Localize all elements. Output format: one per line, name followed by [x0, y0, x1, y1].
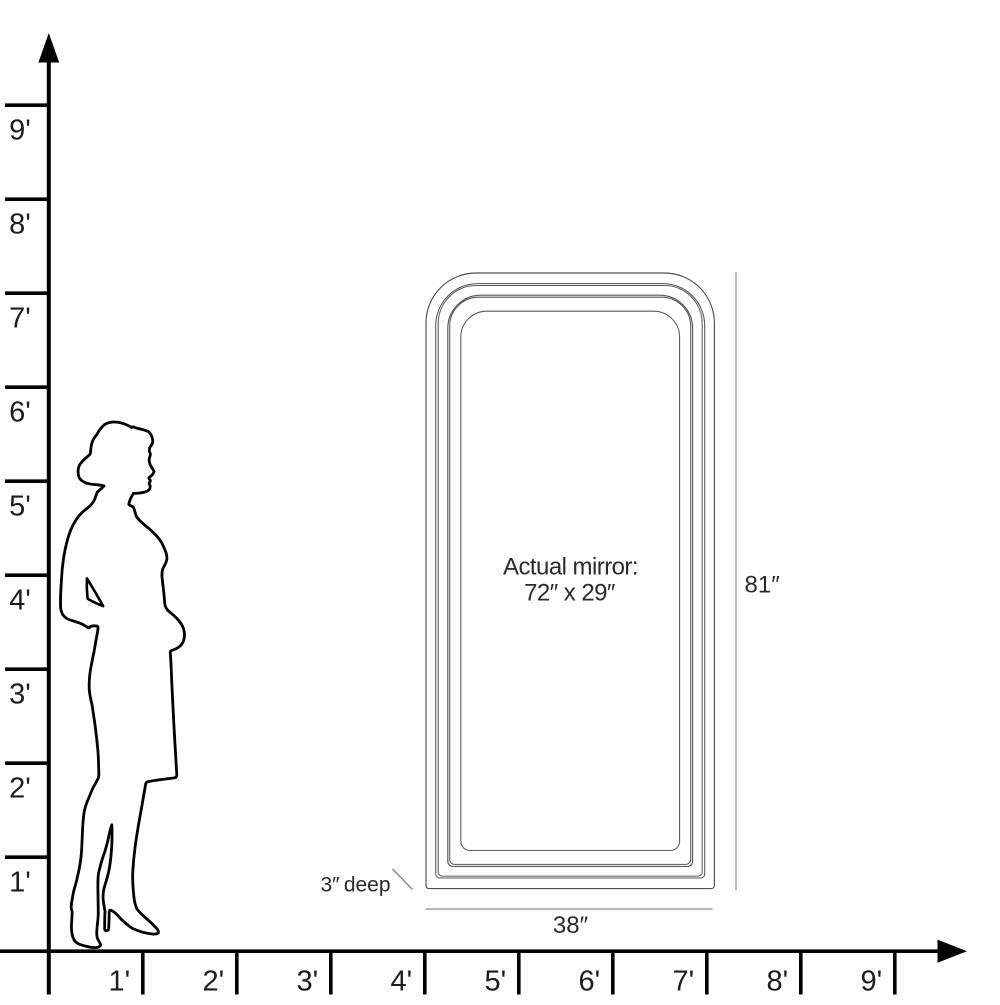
svg-text:8': 8' — [766, 966, 788, 998]
svg-text:4': 4' — [9, 585, 31, 617]
svg-text:4': 4' — [390, 966, 412, 998]
svg-text:6': 6' — [578, 966, 600, 998]
svg-text:Actual mirror:: Actual mirror: — [503, 554, 638, 581]
svg-text:2': 2' — [9, 773, 31, 805]
svg-text:81″: 81″ — [745, 572, 781, 599]
svg-text:9': 9' — [860, 966, 882, 998]
svg-text:1': 1' — [108, 966, 130, 998]
svg-text:5': 5' — [484, 966, 506, 998]
svg-text:1': 1' — [9, 867, 31, 899]
svg-text:3': 3' — [296, 966, 318, 998]
svg-text:8': 8' — [9, 209, 31, 241]
svg-text:5': 5' — [9, 491, 31, 523]
svg-text:7': 7' — [672, 966, 694, 998]
svg-text:9': 9' — [9, 115, 31, 147]
svg-text:3': 3' — [9, 679, 31, 711]
svg-text:7': 7' — [9, 303, 31, 335]
svg-text:2': 2' — [202, 966, 224, 998]
svg-text:6': 6' — [9, 397, 31, 429]
svg-text:3″ deep: 3″ deep — [321, 874, 391, 897]
svg-text:72″ x 29″: 72″ x 29″ — [524, 580, 616, 607]
svg-text:38″: 38″ — [553, 912, 589, 939]
